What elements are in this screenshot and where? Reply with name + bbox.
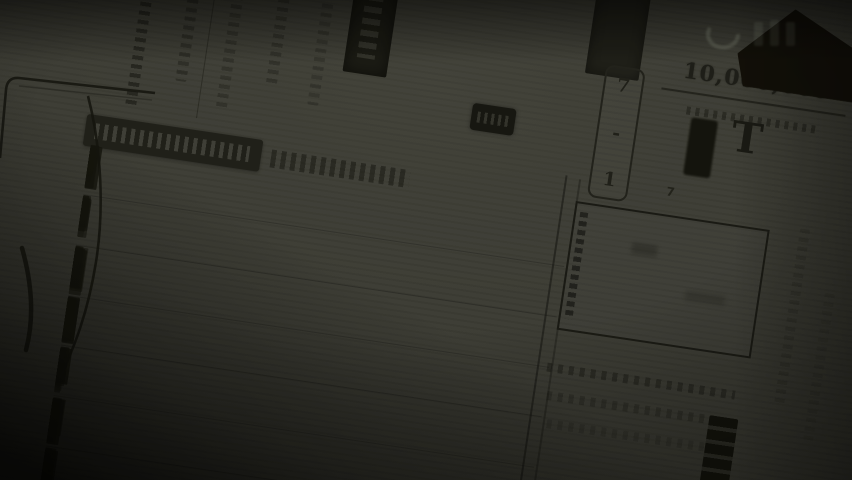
print-smudge [631, 242, 658, 258]
masthead-text-column [216, 0, 248, 108]
large-initial-letter: T [728, 115, 765, 161]
masthead-text-column [774, 228, 810, 408]
race-frame-box: 7 - 1 [587, 64, 646, 202]
bordered-info-box [557, 201, 770, 359]
frame-number-bottom: 1 [601, 170, 617, 191]
photo-scene: 7 - 1 10,000,000 T 7 [0, 0, 852, 480]
masthead-text-column [307, 0, 336, 106]
masthead-text-column [125, 0, 158, 107]
masthead-text-column [175, 0, 202, 82]
small-numeral: 7 [665, 184, 675, 199]
print-smudge [684, 290, 725, 306]
black-badge [469, 103, 517, 136]
newspaper-page: 7 - 1 10,000,000 T 7 [0, 0, 852, 480]
listing-grid [38, 145, 571, 480]
dark-print-blob [683, 117, 718, 178]
frame-separator: - [611, 123, 622, 143]
masthead-text-column [803, 293, 835, 443]
frame-number-top: 7 [615, 76, 631, 97]
fine-print-row [546, 391, 715, 425]
fine-print-row [546, 419, 725, 455]
inverted-title-band [343, 0, 409, 78]
masthead-text-column [266, 0, 291, 86]
